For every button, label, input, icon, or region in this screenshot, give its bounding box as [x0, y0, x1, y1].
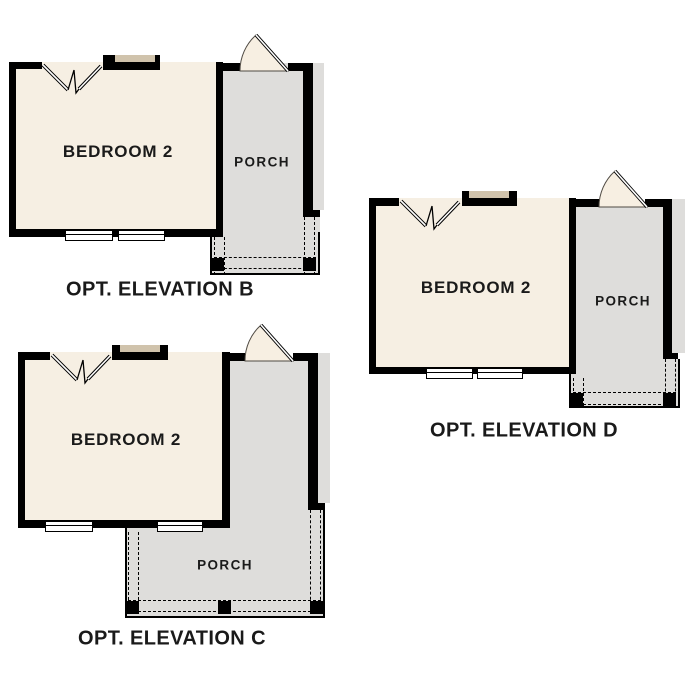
- porch-post: [126, 601, 139, 614]
- plan-caption: OPT. ELEVATION D: [430, 420, 618, 443]
- porch-wall-end-cap: [663, 353, 678, 359]
- double-window: [65, 230, 113, 241]
- side-wall-strip: [313, 63, 324, 210]
- porch-fill-patch: [303, 217, 320, 233]
- porch-post: [310, 601, 323, 614]
- double-window: [118, 230, 165, 241]
- roof-line-dashed: [128, 532, 129, 610]
- wall-bottom: [9, 229, 223, 237]
- porch-label: PORCH: [234, 155, 290, 170]
- porch-post: [663, 393, 676, 406]
- porch-post: [211, 258, 224, 271]
- wall-top-segment: [9, 62, 42, 69]
- plan-opt-elevation-d: BEDROOM 2 PORCH OPT. ELEVATION D: [369, 160, 687, 450]
- window-break-icon: [40, 62, 104, 96]
- bedroom-label: BEDROOM 2: [421, 278, 531, 298]
- window-break-icon: [49, 352, 113, 386]
- porch-wall-right: [308, 353, 318, 503]
- porch-post: [570, 393, 583, 406]
- double-window: [426, 368, 473, 379]
- wall-bedroom-porch-shared: [216, 62, 223, 237]
- plan-opt-elevation-b: BEDROOM 2 PORCH OPT. ELEVATION B: [9, 28, 325, 310]
- window-break-icon: [398, 198, 462, 232]
- roof-line-dashed: [214, 268, 316, 269]
- wall-left: [9, 62, 16, 237]
- porch-wall-top-left: [569, 199, 599, 207]
- slab-edge: [678, 359, 680, 374]
- porch-fill: [230, 360, 308, 528]
- wall-top-segment: [18, 352, 50, 360]
- wall-bedroom-porch-shared: [222, 352, 230, 528]
- plan-caption: OPT. ELEVATION B: [66, 279, 254, 302]
- porch-label: PORCH: [197, 558, 253, 573]
- wall-top-segment: [369, 198, 399, 206]
- wall-left: [18, 352, 25, 528]
- window-accent: [115, 55, 155, 62]
- floorplan-sheet: BEDROOM 2 PORCH OPT. ELEVATION B: [0, 0, 687, 687]
- porch-wall-right: [303, 63, 313, 210]
- roof-line-dashed: [320, 510, 321, 610]
- porch-fill: [576, 207, 663, 374]
- porch-wall-end-cap: [308, 503, 325, 510]
- porch-fill: [216, 63, 303, 233]
- slab-edge: [323, 510, 325, 528]
- plan-caption: OPT. ELEVATION C: [78, 628, 266, 651]
- porch-wall-right: [663, 199, 672, 353]
- double-window: [477, 368, 523, 379]
- porch-post: [303, 258, 316, 271]
- roof-line-dashed: [573, 404, 676, 405]
- porch-label: PORCH: [595, 294, 651, 309]
- window-accent: [469, 191, 509, 198]
- wall-left: [369, 198, 376, 374]
- door-swing-icon: [242, 318, 302, 361]
- roof-line-dashed: [138, 532, 139, 610]
- roof-line-dashed: [214, 257, 316, 258]
- roof-line-dashed: [310, 510, 311, 610]
- porch-wall-end-cap: [303, 210, 320, 217]
- porch-post: [218, 601, 231, 614]
- plan-opt-elevation-c: BEDROOM 2 PORCH OPT. ELEVATION C: [18, 320, 333, 655]
- bedroom-label: BEDROOM 2: [71, 430, 181, 450]
- double-window: [157, 521, 203, 532]
- double-window: [45, 521, 93, 532]
- bedroom-label: BEDROOM 2: [63, 142, 173, 162]
- side-wall-strip: [318, 353, 330, 503]
- roof-line-dashed: [224, 237, 225, 275]
- door-swing-icon: [596, 164, 656, 207]
- roof-line-dashed: [573, 392, 676, 393]
- side-wall-strip: [672, 199, 685, 353]
- door-swing-icon: [237, 28, 297, 71]
- window-accent: [120, 345, 160, 352]
- wall-bedroom-porch-shared: [569, 198, 576, 374]
